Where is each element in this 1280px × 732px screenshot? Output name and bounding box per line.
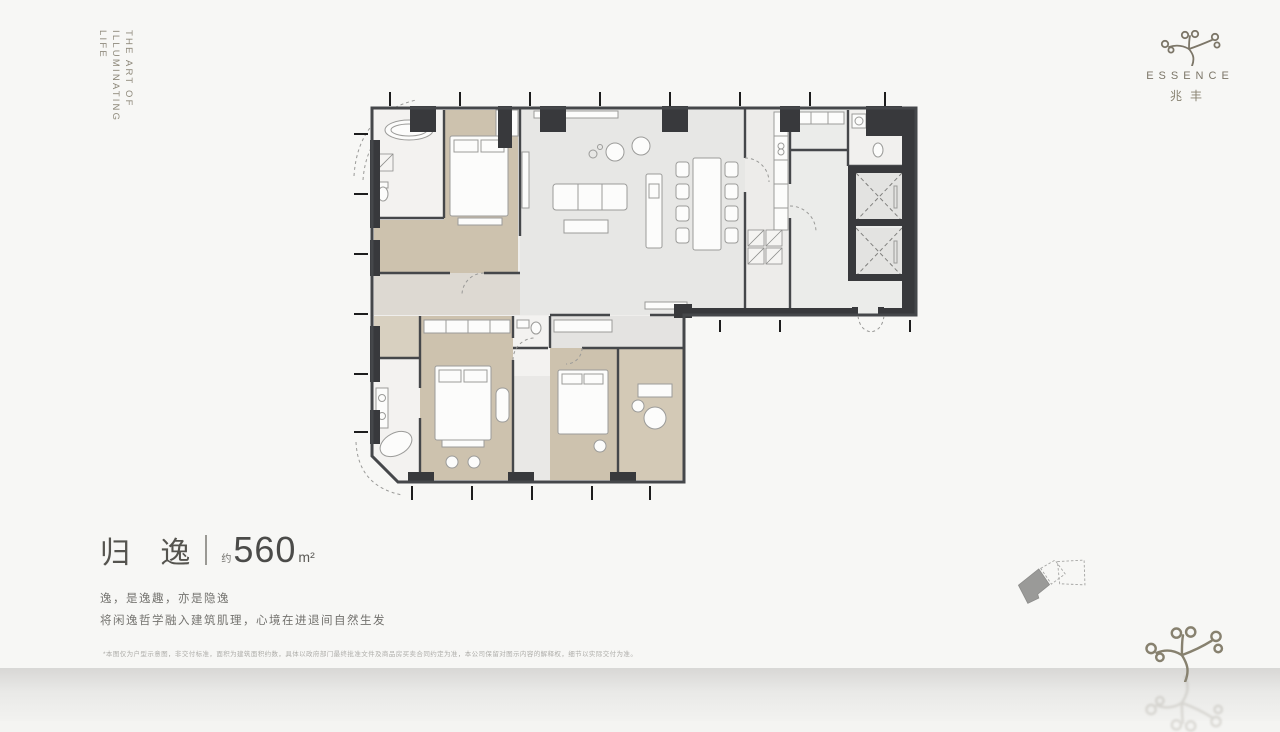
coffee-table — [564, 220, 608, 233]
copy-line-1: 逸，是逸趣，亦是隐逸 — [100, 588, 386, 610]
key-plan-unit-3 — [1054, 554, 1091, 591]
wardrobe — [424, 320, 510, 333]
tagline-line-2: ILLUMINATING — [109, 30, 122, 140]
corner-branch-logo-reflection — [1128, 676, 1238, 732]
essence-cn-name: 兆丰 — [1140, 87, 1240, 104]
area-unit: m² — [298, 549, 314, 565]
branch-sprout-icon — [1140, 30, 1240, 66]
tagline-line-3: LIFE — [96, 30, 109, 140]
brand-tagline-vertical: THE ART OF ILLUMINATING LIFE — [96, 30, 135, 140]
key-plan-highlighted-unit — [1016, 567, 1053, 604]
brochure-page: THE ART OF ILLUMINATING LIFE ESSENCE 兆丰 — [0, 0, 1280, 721]
title-divider — [205, 535, 207, 565]
sofa — [553, 184, 627, 210]
unit-title-block: 归 逸 约 560 m² — [100, 528, 315, 572]
key-plan — [1005, 553, 1105, 611]
floor-plan — [350, 88, 930, 500]
armchair — [606, 143, 624, 161]
area-approx-label: 约 — [221, 550, 231, 565]
washer — [852, 114, 866, 128]
copy-line-2: 将闲逸哲学融入建筑肌理，心境在进退间自然生发 — [100, 610, 386, 632]
marketing-copy: 逸，是逸趣，亦是隐逸 将闲逸哲学融入建筑肌理，心境在进退间自然生发 — [100, 588, 386, 632]
disclaimer-text: *本图仅为户型示意图，非交付标准，面积为建筑面积约数，具体以政府部门最终批准文件… — [103, 648, 743, 658]
unit-area: 约 560 m² — [221, 529, 314, 571]
dining-table — [693, 158, 721, 250]
unit-name: 归 逸 — [100, 528, 201, 572]
tagline-line-1: THE ART OF — [122, 30, 135, 140]
desk — [638, 384, 672, 397]
table-surface-band — [0, 668, 1280, 721]
kitchen-island — [646, 174, 662, 248]
essence-logo: ESSENCE 兆丰 — [1140, 30, 1240, 104]
area-value: 560 — [233, 529, 296, 571]
corner-branch-logo — [1128, 626, 1238, 682]
essence-wordmark: ESSENCE — [1140, 70, 1240, 82]
